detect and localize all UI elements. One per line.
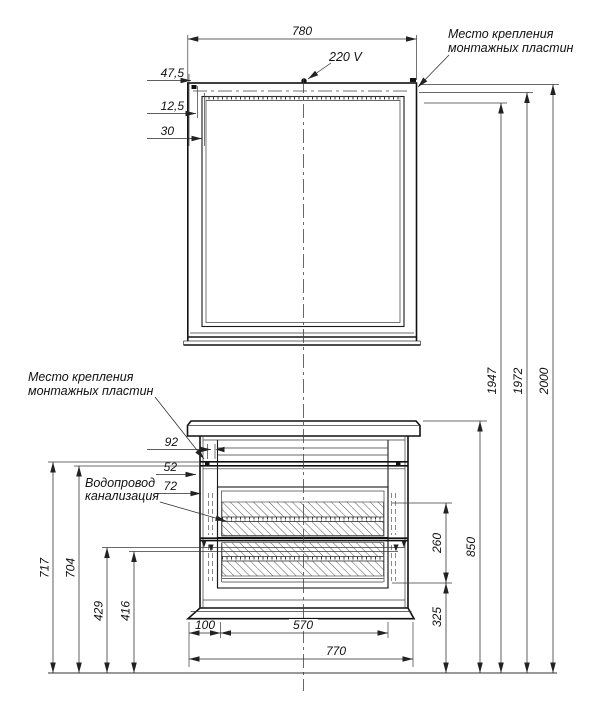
dim-cabinet-top-offsets: 92 52 72 bbox=[147, 435, 225, 494]
dim-text-416: 416 bbox=[119, 601, 133, 621]
dim-text-717: 717 bbox=[38, 557, 52, 578]
drawing-page: 780 47,5 12,5 30 1947 1972 2000 bbox=[0, 0, 607, 720]
cabinet-mounting-mark-right bbox=[396, 462, 401, 466]
voltage-annotation: 220 V bbox=[308, 50, 363, 79]
dim-right-cabinet: 260 850 325 bbox=[392, 421, 487, 673]
dim-text-780: 780 bbox=[292, 24, 312, 38]
mounting-plate-annotation-top: Место крепления монтажных пластин bbox=[418, 27, 574, 87]
dim-text-92: 92 bbox=[165, 435, 179, 449]
dim-text-2000: 2000 bbox=[537, 367, 551, 395]
dim-text-570: 570 bbox=[293, 618, 313, 632]
dim-text-770: 770 bbox=[326, 644, 346, 658]
dim-text-72: 72 bbox=[164, 479, 178, 493]
drawer-top bbox=[218, 487, 389, 538]
dim-text-1972: 1972 bbox=[511, 367, 525, 394]
water-sewer-annotation: Водопровод канализация bbox=[85, 476, 226, 521]
mount-plate-label-left-line2: монтажных пластин bbox=[28, 384, 154, 398]
cabinet-mounting-mark-left bbox=[205, 462, 210, 466]
mount-plate-label-left-line1: Место крепления bbox=[28, 370, 134, 384]
dim-text-30: 30 bbox=[161, 124, 175, 138]
dim-text-850: 850 bbox=[464, 537, 478, 557]
dim-text-100: 100 bbox=[195, 618, 215, 632]
water-supply-label: Водопровод bbox=[85, 476, 155, 490]
sewerage-label: канализация bbox=[85, 489, 159, 503]
voltage-label: 220 V bbox=[328, 50, 363, 64]
dim-text-429: 429 bbox=[92, 601, 106, 621]
mount-plate-label-top-line2: монтажных пластин bbox=[448, 41, 574, 55]
dim-overall-heights: 1947 1972 2000 bbox=[419, 85, 559, 674]
mount-plate-label-top-line1: Место крепления bbox=[448, 27, 554, 41]
technical-drawing-canvas: 780 47,5 12,5 30 1947 1972 2000 bbox=[0, 0, 607, 720]
mirror-top-moulding bbox=[206, 97, 400, 101]
dim-text-12-5: 12,5 bbox=[161, 99, 185, 113]
mounting-plate-mark-right bbox=[410, 78, 416, 82]
power-outlet-point bbox=[301, 78, 306, 83]
dim-text-704: 704 bbox=[64, 558, 78, 578]
dim-mirror-left-offsets: 47,5 12,5 30 bbox=[147, 66, 205, 146]
dim-text-260: 260 bbox=[430, 533, 444, 554]
mounting-plate-mark-left bbox=[192, 85, 197, 89]
dim-bottom-widths: 100 570 770 bbox=[189, 618, 413, 667]
dim-text-47-5: 47,5 bbox=[161, 66, 185, 80]
dim-mirror-width: 780 bbox=[188, 24, 417, 80]
mirror-front-view bbox=[184, 78, 421, 345]
annotations: 220 V Место крепления монтажных пластин … bbox=[28, 27, 574, 521]
dim-text-325: 325 bbox=[430, 607, 444, 627]
dim-text-1947: 1947 bbox=[485, 366, 499, 394]
